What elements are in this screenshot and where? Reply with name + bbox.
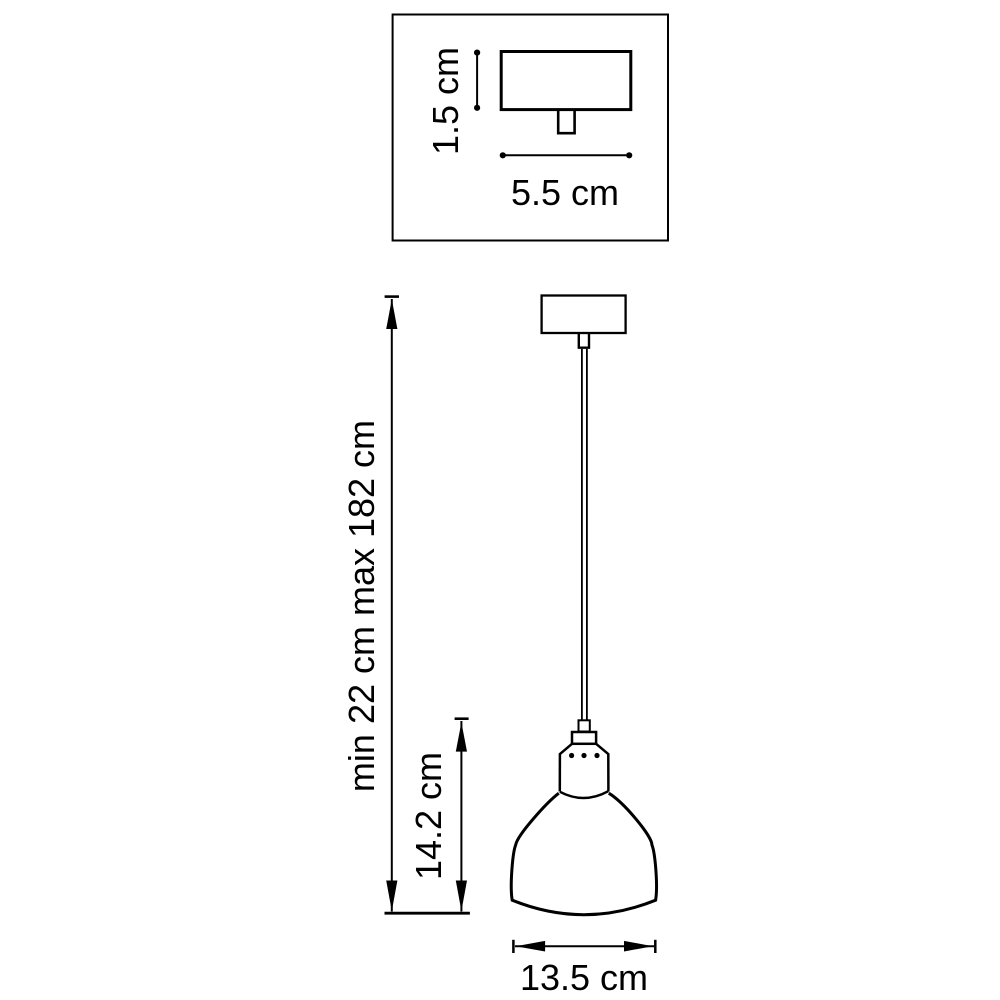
svg-text:1.5 cm: 1.5 cm bbox=[425, 47, 466, 155]
svg-text:14.2 cm: 14.2 cm bbox=[408, 752, 449, 880]
svg-text:13.5 cm: 13.5 cm bbox=[520, 957, 648, 998]
svg-text:min 22 cm max 182 cm: min 22 cm max 182 cm bbox=[341, 420, 382, 792]
svg-text:5.5 cm: 5.5 cm bbox=[511, 172, 619, 213]
